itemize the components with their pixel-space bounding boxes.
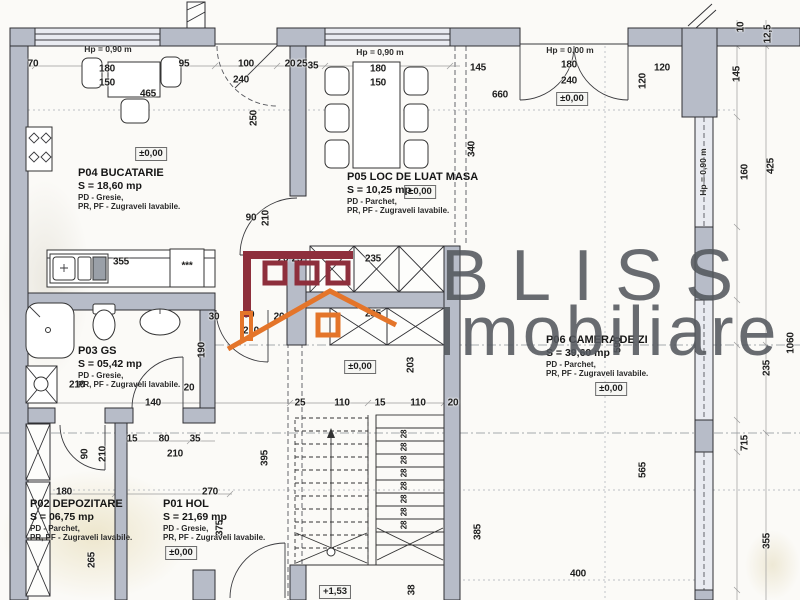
room-name: P06 CAMERA DE ZI [546,334,648,347]
room-wall-finish: PR, PF - Zugraveli lavabile. [78,202,180,212]
floor-plan: 7018015095100240202535180150145660180240… [0,0,800,600]
room-floor-finish: PD - Parchet, [347,197,478,207]
room-name: P04 BUCATARIE [78,167,180,180]
room-label-p01-hol: P01 HOL S = 21,69 mp PD - Gresie, PR, PF… [163,498,265,543]
room-label-p05-loc-de-luat-masa: P05 LOC DE LUAT MASA S = 10,25 mp PD - P… [347,171,478,216]
room-wall-finish: PR, PF - Zugraveli lavabile. [347,206,478,216]
room-floor-finish: PD - Parchet, [30,524,132,534]
room-floor-finish: PD - Gresie, [78,371,180,381]
room-floor-finish: PD - Gresie, [78,193,180,203]
room-area: S = 05,42 mp [78,358,180,371]
room-area: S = 10,25 mp [347,184,478,197]
room-area: S = 18,60 mp [78,180,180,193]
room-area: S = 06,75 mp [30,511,132,524]
room-area: S = 39,60 mp [546,347,648,360]
room-wall-finish: PR, PF - Zugraveli lavabile. [78,380,180,390]
room-label-p04-bucatarie: P04 BUCATARIE S = 18,60 mp PD - Gresie, … [78,167,180,212]
room-floor-finish: PD - Parchet, [546,360,648,370]
room-wall-finish: PR, PF - Zugraveli lavabile. [163,533,265,543]
room-wall-finish: PR, PF - Zugraveli lavabile. [30,533,132,543]
room-label-p03-gs: P03 GS S = 05,42 mp PD - Gresie, PR, PF … [78,345,180,390]
room-label-p02-depozitare: P02 DEPOZITARE S = 06,75 mp PD - Parchet… [30,498,132,543]
room-area: S = 21,69 mp [163,511,265,524]
room-name: P05 LOC DE LUAT MASA [347,171,478,184]
room-name: P01 HOL [163,498,265,511]
room-name: P03 GS [78,345,180,358]
room-wall-finish: PR, PF - Zugraveli lavabile. [546,369,648,379]
room-label-p06-camera-de-zi: P06 CAMERA DE ZI S = 39,60 mp PD - Parch… [546,334,648,379]
room-floor-finish: PD - Gresie, [163,524,265,534]
room-name: P02 DEPOZITARE [30,498,132,511]
